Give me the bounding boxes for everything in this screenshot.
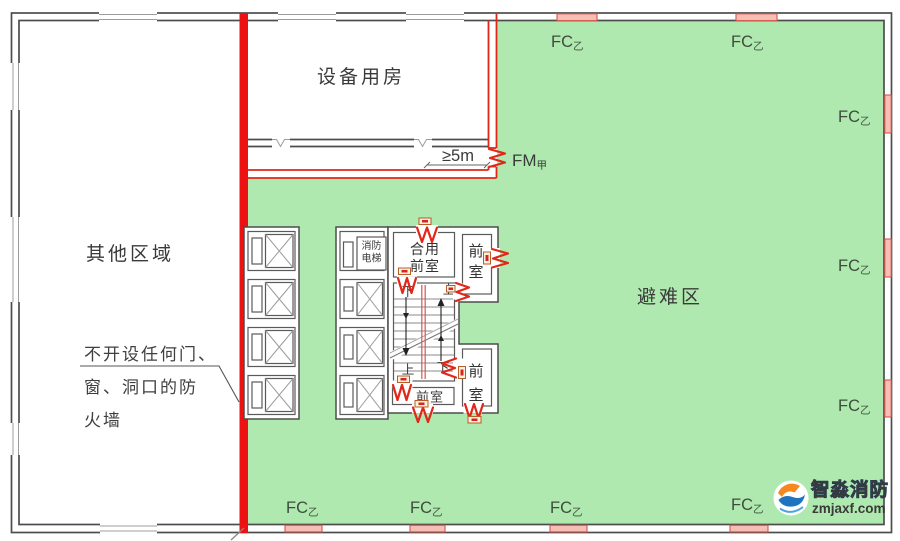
window-icon: [11, 423, 21, 455]
vestibule-label: 前: [468, 363, 483, 380]
window-icon: [99, 12, 157, 22]
elevator-cell-icon: [248, 280, 295, 319]
elevator-cell-icon: [340, 328, 384, 367]
fire-elevator-label: 消防: [362, 239, 382, 252]
elevator-cell-icon: [248, 328, 295, 367]
door-tag-icon: [419, 218, 431, 225]
fire-window-icon: [730, 525, 768, 532]
firewall-note-line: 窗、洞口的防: [84, 378, 198, 397]
door-tag-icon: [468, 417, 481, 424]
fire-window-icon: [885, 239, 891, 277]
door-tag-icon: [459, 367, 466, 379]
elevator-bank-middle: 消防 电梯: [336, 227, 388, 419]
fire-window-icon: [557, 14, 597, 21]
fire-window-icon: [410, 525, 445, 532]
elevator-cell-icon: [248, 376, 295, 415]
label-equipment-room: 设备用房: [317, 66, 405, 88]
door-tag-icon: [398, 376, 410, 383]
fire-window-icon: [885, 380, 891, 417]
elevator-cell-icon: [340, 376, 384, 415]
window-icon: [278, 12, 336, 22]
fire-window-icon: [285, 525, 322, 532]
elevator-cell-icon: [248, 232, 295, 271]
door-tag-icon: [415, 401, 428, 408]
elevator-bank-left: [244, 227, 299, 419]
fire-window-icon: [736, 14, 777, 21]
door-tag-icon: [447, 286, 456, 293]
watermark: 智淼消防 zmjaxf.com: [774, 479, 890, 516]
elevator-cell-icon: [340, 280, 384, 319]
shared-vestibule-label: 合用: [410, 241, 440, 257]
window-icon: [11, 217, 21, 302]
window-icon: [11, 63, 21, 110]
window-icon: [100, 524, 157, 534]
brand-domain: zmjaxf.com: [812, 501, 886, 516]
brand-logo-icon: [774, 481, 809, 516]
wall-break-icon: [272, 137, 290, 148]
door-tag-icon: [484, 252, 491, 264]
door-tag-icon: [399, 268, 411, 275]
vestibule-label: 室: [468, 387, 483, 404]
fire-window-icon: [550, 525, 587, 532]
window-icon: [406, 12, 464, 22]
firewall-note-line: 不开设任何门、: [84, 345, 217, 364]
fire-window-icon: [885, 95, 891, 133]
shared-vestibule-label: 前室: [410, 258, 440, 274]
wall-break-icon: [414, 137, 432, 148]
fire-elevator-label: 电梯: [362, 252, 382, 265]
firewall-note-line: 火墙: [84, 411, 122, 430]
label-refuge-area: 避难区: [637, 286, 703, 308]
vestibule-label: 前: [468, 243, 483, 260]
vestibule-label: 室: [468, 264, 483, 281]
floor-plan: 消防 电梯 合用 前室 前 室: [0, 0, 900, 541]
brand-name: 智淼消防: [811, 479, 889, 500]
fire-elevator-cell: 消防 电梯: [340, 232, 386, 271]
label-other-area: 其他区域: [86, 243, 174, 265]
stair-up-label: 上: [402, 363, 415, 377]
dimension-label: ≥5m: [442, 147, 474, 165]
refuge-area-fill-upper: [497, 21, 884, 525]
